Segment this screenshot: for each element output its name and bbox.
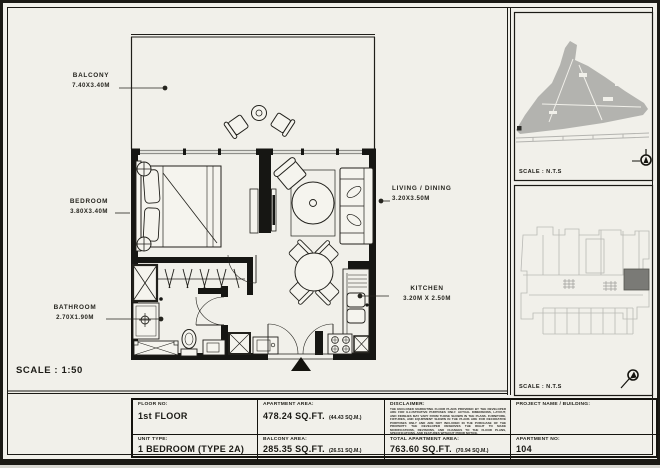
kitchen-sink (347, 293, 369, 323)
total-area-label: TOTAL APARTMENT AREA: (390, 437, 506, 442)
dining-set (287, 239, 341, 306)
room-dims: 3.20X3.50M (392, 194, 482, 204)
site-plan-scale-label: SCALE : N.T.S (519, 169, 562, 175)
main-scale-label: SCALE : 1:50 (16, 365, 83, 376)
total-area-value: 763.60 SQ.FT. (390, 444, 452, 454)
bathroom-label: BATHROOM 2.70X1.90M (27, 303, 123, 322)
balcony-area-metric: (26.51 SQ.M.) (329, 448, 362, 454)
balcony-area-value: 285.35 SQ.FT. (263, 444, 325, 454)
disclaimer-text: THE ENCLOSED MARKETING FLOOR PLANS PROVI… (390, 408, 506, 435)
room-name: LIVING / DINING (392, 184, 482, 194)
bathroom-cabinet (203, 340, 225, 355)
room-name: BATHROOM (27, 303, 123, 313)
north-arrow-icon (621, 370, 638, 388)
stove (328, 334, 352, 354)
unit-type-label: UNIT TYPE: (138, 437, 253, 442)
key-plan-panel (515, 186, 653, 396)
kitchen-label: KITCHEN 3.20M X 2.50M (388, 284, 466, 303)
balcony-outline (131, 35, 375, 150)
kitchen-fixtures (328, 269, 369, 354)
balcony-area-label: BALCONY AREA: (263, 437, 380, 442)
bedside-lamp-icon (137, 237, 151, 251)
apartment-no-value: 104 (516, 444, 656, 454)
site-plan-shape (516, 41, 648, 134)
living-dining-label: LIVING / DINING 3.20X3.50M (392, 184, 482, 203)
vanity (133, 303, 159, 339)
room-dims: 3.80X3.40M (41, 207, 137, 217)
room-dims: 3.20M X 2.50M (388, 294, 466, 304)
bedroom-furniture (136, 161, 258, 251)
total-area-metric: (70.94 SQ.M.) (456, 448, 489, 454)
drawing-sheet: BALCONY 7.40X3.40M BEDROOM 3.80X3.40M BA… (0, 0, 660, 465)
apartment-area-cell: APARTMENT AREA: 478.24 SQ.FT.(44.43 SQ.M… (258, 400, 385, 435)
highlighted-unit (624, 269, 649, 290)
apartment-area-metric: (44.43 SQ.M.) (329, 415, 362, 421)
fridge-icon (354, 336, 369, 352)
bedroom-label: BEDROOM 3.80X3.40M (41, 197, 137, 216)
apartment-no-label: APARTMENT NO: (516, 437, 656, 442)
closet (143, 269, 245, 288)
bedside-lamp-icon (137, 162, 151, 176)
room-dims: 2.70X1.90M (27, 313, 123, 323)
project-name-cell: PROJECT NAME / BUILDING: (511, 400, 660, 435)
shaft-icon (133, 265, 157, 301)
site-plan-panel (515, 13, 653, 181)
key-plan-scale-label: SCALE : N.T.S (519, 384, 562, 390)
room-name: BALCONY (43, 71, 139, 81)
title-block-table: FLOOR NO: 1st FLOOR APARTMENT AREA: 478.… (131, 398, 658, 458)
north-arrow-icon (632, 149, 651, 165)
hall-shaft-icon (229, 333, 250, 354)
balcony-label: BALCONY 7.40X3.40M (43, 71, 139, 90)
apartment-area-label: APARTMENT AREA: (263, 402, 380, 407)
apartment-area-value: 478.24 SQ.FT. (263, 411, 325, 421)
disclaimer-cell: DISCLAIMER: THE ENCLOSED MARKETING FLOOR… (385, 400, 511, 435)
toilet (181, 330, 197, 357)
floor-no-label: FLOOR NO: (138, 402, 253, 407)
total-area-cell: TOTAL APARTMENT AREA: 763.60 SQ.FT.(70.9… (385, 435, 511, 460)
coffee-table (292, 182, 334, 224)
floor-no-cell: FLOOR NO: 1st FLOOR (133, 400, 258, 435)
sofa (340, 168, 373, 244)
balcony-furniture (223, 106, 295, 140)
unit-type-cell: UNIT TYPE: 1 BEDROOM (TYPE 2A) (133, 435, 258, 460)
room-name: BEDROOM (41, 197, 137, 207)
glass-front (131, 149, 376, 156)
floor-no-value: 1st FLOOR (138, 411, 253, 421)
balcony-area-cell: BALCONY AREA: 285.35 SQ.FT.(26.51 SQ.M.) (258, 435, 385, 460)
unit-type-value: 1 BEDROOM (TYPE 2A) (138, 444, 253, 454)
apartment-no-cell: APARTMENT NO: 104 (511, 435, 660, 460)
project-name-label: PROJECT NAME / BUILDING: (516, 402, 656, 407)
living-furniture (272, 156, 374, 305)
room-dims: 7.40X3.40M (43, 81, 139, 91)
shower-bench (134, 341, 178, 355)
room-name: KITCHEN (388, 284, 466, 294)
